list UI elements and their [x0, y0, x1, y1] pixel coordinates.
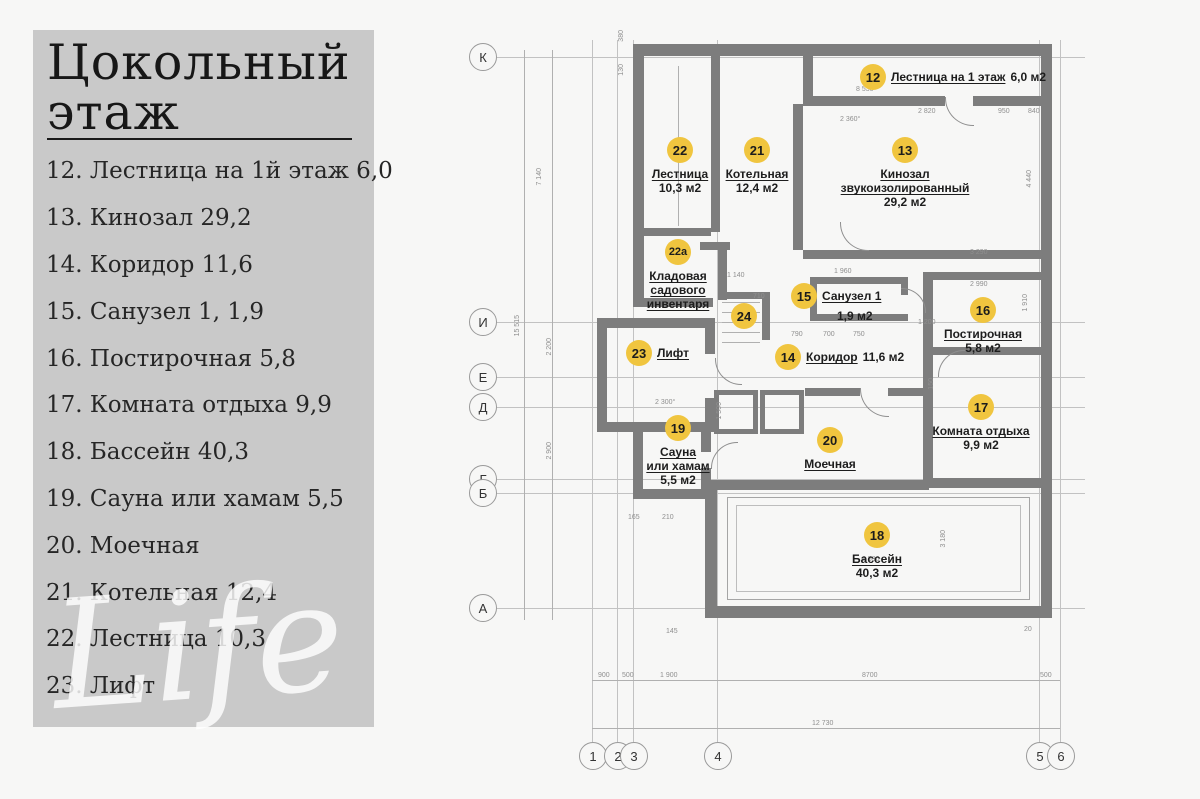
room-marker-13: 13	[892, 137, 918, 163]
dimension-label: 8700	[862, 672, 878, 679]
dimension-label: 15 515	[514, 315, 521, 336]
dimension-label: 700	[823, 331, 835, 338]
room-marker-14: 14	[775, 344, 801, 370]
room-marker-15: 15	[791, 283, 817, 309]
dimension-label: 2 300°	[655, 399, 675, 406]
wall	[705, 318, 715, 354]
room-label-17: 17 Комната отдыха 9,9 м2	[921, 394, 1041, 453]
dimension-label: 950	[998, 108, 1010, 115]
room-label-22a: 22а Кладовая садового инвентаря	[636, 239, 720, 311]
grid-line	[1060, 40, 1061, 742]
axis-row-K: К	[469, 43, 497, 71]
page-title: Цокольный этаж	[47, 38, 357, 138]
title-underline	[47, 138, 352, 140]
room-label-12: 12 Лестница на 1 этаж 6,0 м2	[860, 64, 1046, 90]
wall	[803, 56, 813, 96]
axis-row-A: А	[469, 594, 497, 622]
legend-item-23: 23. Лифт	[46, 663, 376, 710]
room-marker-16: 16	[970, 297, 996, 323]
room-name: Лестница	[652, 167, 708, 181]
room-name: Коридор	[806, 350, 858, 364]
dimension-label: 150	[928, 378, 935, 390]
wall	[644, 228, 711, 236]
legend-item-14: 14. Коридор 11,6	[46, 242, 376, 289]
door-arc	[715, 358, 742, 385]
wall	[923, 272, 1041, 280]
room-name: Санузел 1	[822, 289, 881, 303]
stair-tread	[722, 332, 760, 333]
dim-chain-line	[552, 50, 553, 620]
axis-row-E: Е	[469, 363, 497, 391]
room-marker-24: 24	[731, 303, 757, 329]
room-name: Кинозал звукоизолированный	[841, 167, 970, 195]
room-label-19: 19 Сауна или хамам 5,5 м2	[638, 415, 718, 488]
room-label-22: 22 Лестница 10,3 м2	[630, 137, 730, 196]
room-name: Лестница на 1 этаж	[891, 70, 1005, 84]
dimension-label: 710	[753, 293, 765, 300]
dimension-label: 380	[618, 30, 625, 42]
room-label-18: 18 Бассейн 40,3 м2	[817, 522, 937, 581]
wall	[803, 96, 945, 106]
dimension-label: 2 820	[918, 108, 936, 115]
dim-chain-line	[524, 50, 525, 620]
dimension-label: 790	[791, 331, 803, 338]
room-label-13: 13 Кинозал звукоизолированный 29,2 м2	[825, 137, 985, 210]
axis-col-1: 1	[579, 742, 607, 770]
legend-item-16: 16. Постирочная 5,8	[46, 335, 376, 382]
dimension-label: 165	[628, 514, 640, 521]
grid-line	[497, 57, 1085, 58]
room-label-20: 20 Моечная	[780, 427, 880, 471]
dimension-label: 7 140	[536, 168, 543, 186]
dimension-label: 145	[666, 628, 678, 635]
dimension-label: 1 140	[727, 272, 745, 279]
dimension-label: 840	[1028, 108, 1040, 115]
door-arc	[840, 222, 869, 251]
room-area: 29,2 м2	[884, 195, 926, 210]
room-area: 9,9 м2	[963, 438, 999, 453]
grid-line	[497, 377, 1085, 378]
dimension-label: 4 440	[1026, 170, 1033, 188]
dimension-label: 3 290	[970, 249, 988, 256]
room-label-16: 16 Постирочная 5,8 м2	[923, 297, 1043, 356]
room-area: 5,5 м2	[660, 473, 696, 488]
wall	[597, 318, 715, 328]
legend-item-22: 22. Лестница 10,3	[46, 616, 376, 663]
dim-chain-line	[592, 728, 1060, 729]
legend-item-18: 18. Бассейн 40,3	[46, 429, 376, 476]
room-name: Моечная	[804, 457, 856, 471]
room-area: 40,3 м2	[856, 566, 898, 581]
room-area: 12,4 м2	[736, 181, 778, 196]
axis-col-6: 6	[1047, 742, 1075, 770]
dimension-label: 500	[622, 672, 634, 679]
room-area: 5,8 м2	[965, 341, 1001, 356]
room-area: 6,0 м2	[1010, 70, 1046, 85]
room-marker-21: 21	[744, 137, 770, 163]
legend-item-12: 12. Лестница на 1й этаж 6,0	[46, 148, 376, 195]
wall	[705, 606, 1052, 618]
wall	[711, 480, 929, 490]
dimension-label: 1 960	[834, 268, 852, 275]
dimension-label: 20	[1024, 626, 1032, 633]
wall	[705, 480, 717, 618]
wall	[597, 318, 607, 432]
dimension-label: 2 360°	[840, 116, 860, 123]
room-area: 10,3 м2	[659, 181, 701, 196]
legend-item-21: 21. Котельная 12,4	[46, 569, 376, 616]
room-name: Лифт	[657, 346, 689, 360]
room-name: Сауна или хамам	[646, 445, 709, 473]
axis-col-3: 3	[620, 742, 648, 770]
legend-item-19: 19. Сауна или хамам 5,5	[46, 476, 376, 523]
dimension-label: 12 730	[812, 720, 833, 727]
axis-col-4: 4	[704, 742, 732, 770]
dimension-label: 900	[598, 672, 610, 679]
axis-row-I: И	[469, 308, 497, 336]
dimension-label: 130	[618, 64, 625, 76]
dimension-label: 500	[1040, 672, 1052, 679]
legend-item-15: 15. Санузел 1, 1,9	[46, 288, 376, 335]
dimension-label: 750	[853, 331, 865, 338]
room-name: Комната отдыха	[932, 424, 1029, 438]
door-arc	[860, 388, 889, 417]
dimension-label: 2 200	[546, 338, 553, 356]
dimension-label: 3 180	[940, 530, 947, 548]
wall	[633, 44, 1052, 56]
room-label-23: 23 Лифт	[626, 340, 689, 366]
legend-item-17: 17. Комната отдыха 9,9	[46, 382, 376, 429]
dim-chain-line	[592, 680, 1060, 681]
dimension-label: 1 900	[660, 672, 678, 679]
room-area: 11,6 м2	[863, 350, 905, 365]
axis-row-D: Д	[469, 393, 497, 421]
room-marker-17: 17	[968, 394, 994, 420]
wall	[923, 478, 1052, 488]
grid-line	[1039, 40, 1040, 742]
stair-tread	[722, 342, 760, 343]
door-arc	[945, 97, 974, 126]
room-label-15: 15 Санузел 1 1,9 м2	[791, 283, 911, 324]
legend-item-20: 20. Моечная	[46, 522, 376, 569]
grid-line	[592, 40, 593, 742]
grid-line	[497, 493, 1085, 494]
dimension-label: 2 900	[546, 442, 553, 460]
grid-line	[617, 40, 618, 742]
room-marker-12: 12	[860, 64, 886, 90]
room-marker-23: 23	[626, 340, 652, 366]
legend-panel: Цокольный этаж 12. Лестница на 1й этаж 6…	[33, 30, 374, 727]
axis-row-B: Б	[469, 479, 497, 507]
room-name: Бассейн	[852, 552, 902, 566]
room-label-24: 24	[731, 303, 757, 329]
legend-item-13: 13. Кинозал 29,2	[46, 195, 376, 242]
room-marker-20: 20	[817, 427, 843, 453]
room-marker-19: 19	[665, 415, 691, 441]
wall	[805, 388, 860, 396]
room-name: Постирочная	[944, 327, 1022, 341]
dimension-label: 210	[662, 514, 674, 521]
wall	[803, 250, 1052, 259]
room-marker-22a: 22а	[665, 239, 691, 265]
dimension-label: 2 990	[970, 281, 988, 288]
room-label-14: 14 Коридор 11,6 м2	[775, 344, 904, 370]
room-area: 1,9 м2	[837, 309, 911, 324]
room-marker-18: 18	[864, 522, 890, 548]
room-marker-22: 22	[667, 137, 693, 163]
legend-list: 12. Лестница на 1й этаж 6,0 13. Кинозал …	[46, 148, 376, 710]
room-name: Котельная	[726, 167, 789, 181]
room-name: Кладовая садового инвентаря	[647, 269, 710, 311]
